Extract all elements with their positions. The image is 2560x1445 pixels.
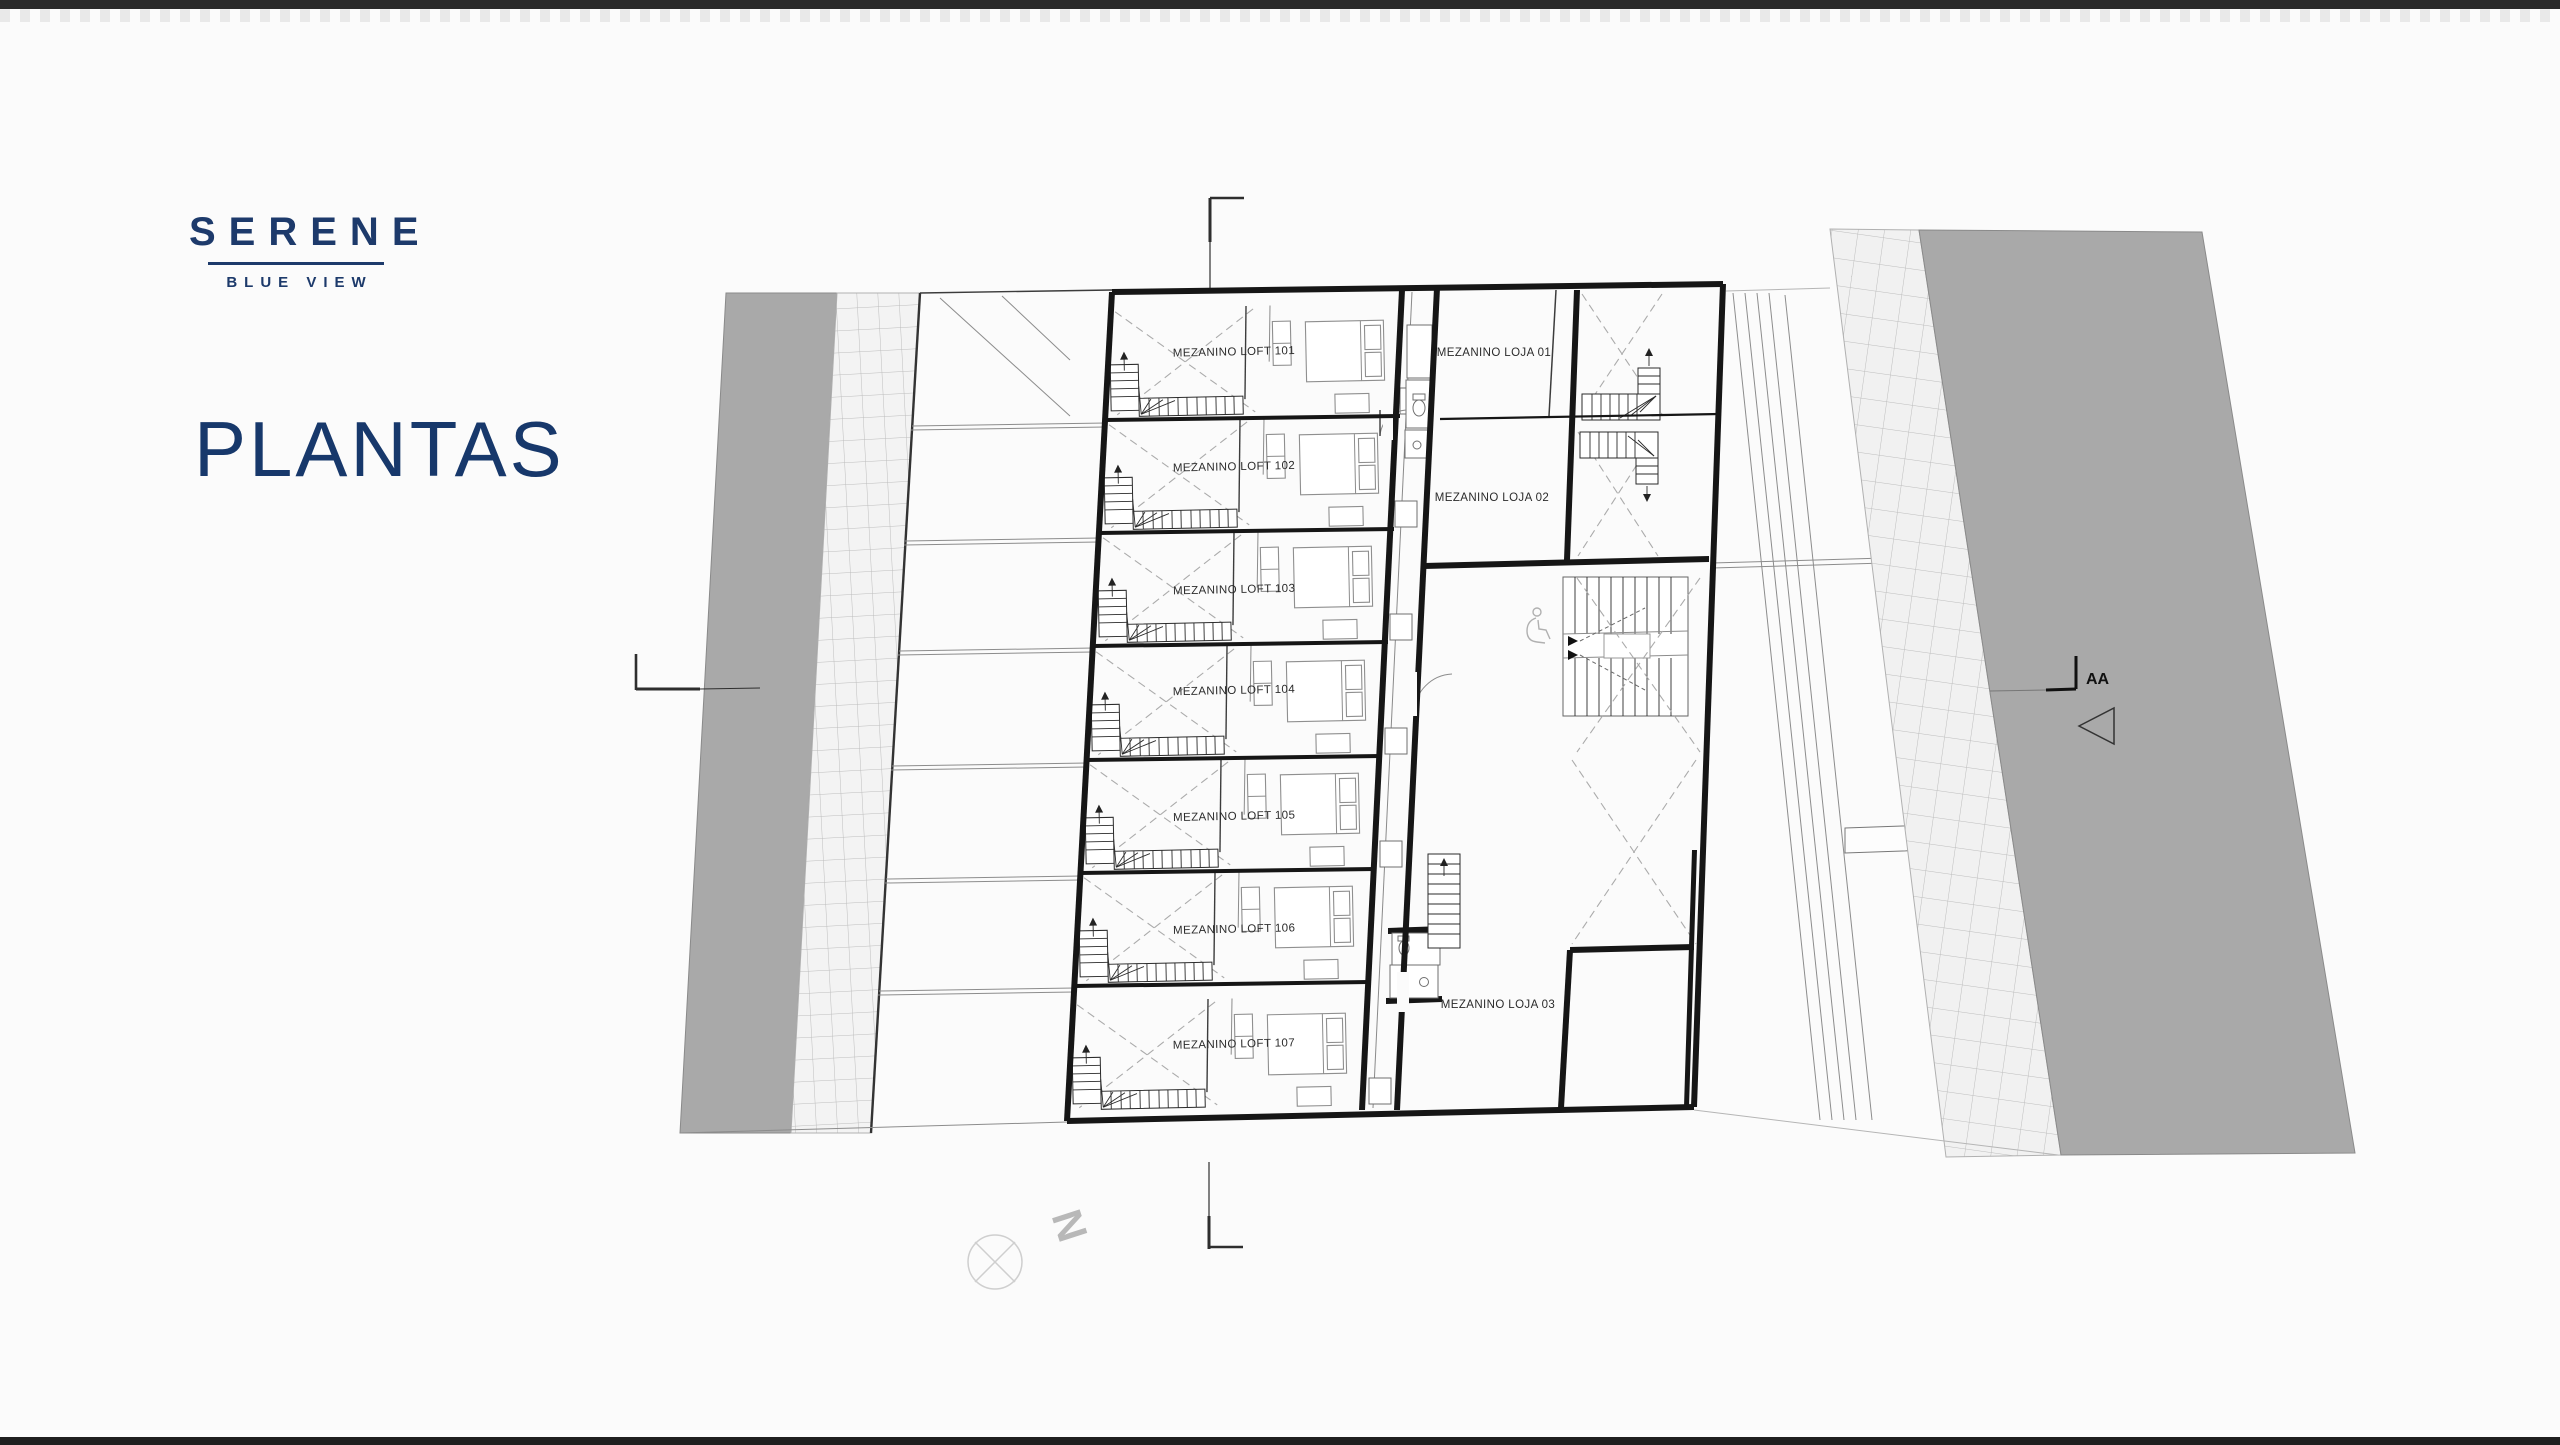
room-label: MEZANINO LOFT 105 — [1173, 810, 1295, 825]
loja-unit-03: MEZANINO LOJA 03 — [1428, 854, 1555, 1011]
loft-unit-105: MEZANINO LOFT 105 — [1084, 756, 1360, 871]
building: MEZANINO LOFT 101 MEZANINO LOFT 102 MEZA… — [1064, 281, 1726, 1124]
north-arrow-icon: N — [968, 1204, 1097, 1289]
loft-unit-106: MEZANINO LOFT 106 — [1078, 869, 1354, 984]
loft-unit-104: MEZANINO LOFT 104 — [1090, 643, 1366, 758]
floor-plan-drawing: AA N MEZANINO LOFT 101 MEZANINO LOFT 102… — [0, 0, 2560, 1445]
room-label: MEZANINO LOFT 102 — [1173, 460, 1295, 475]
section-marker-bottom — [1209, 1162, 1243, 1249]
room-label: MEZANINO LOFT 107 — [1173, 1037, 1295, 1052]
section-label: AA — [2086, 671, 2110, 688]
north-label: N — [1043, 1204, 1097, 1247]
room-label: MEZANINO LOJA 01 — [1437, 347, 1551, 359]
loja03-stair — [1428, 854, 1460, 948]
loja-unit-01: MEZANINO LOJA 01 — [1437, 290, 1662, 560]
room-label: MEZANINO LOFT 103 — [1173, 583, 1295, 598]
site-left-sidewalk — [680, 290, 1112, 1133]
room-label: MEZANINO LOFT 106 — [1173, 922, 1295, 937]
section-marker-top — [1210, 198, 1244, 288]
loft-unit-107: MEZANINO LOFT 107 — [1071, 996, 1347, 1111]
site-right-street — [1694, 229, 2355, 1157]
room-label: MEZANINO LOJA 02 — [1435, 492, 1549, 504]
wheelchair-icon — [1527, 608, 1550, 643]
loft-unit-101: MEZANINO LOFT 101 — [1109, 303, 1385, 418]
loja01-stair — [1582, 348, 1660, 420]
loja-unit-02: MEZANINO LOJA 02 — [1435, 432, 1658, 556]
loft-unit-102: MEZANINO LOFT 102 — [1103, 416, 1379, 531]
loft-unit-103: MEZANINO LOFT 103 — [1097, 529, 1373, 644]
room-label: MEZANINO LOFT 104 — [1173, 684, 1296, 699]
letterbox-bottom — [0, 1437, 2560, 1445]
room-label: MEZANINO LOJA 03 — [1441, 999, 1555, 1011]
room-label: MEZANINO LOFT 101 — [1173, 345, 1295, 360]
